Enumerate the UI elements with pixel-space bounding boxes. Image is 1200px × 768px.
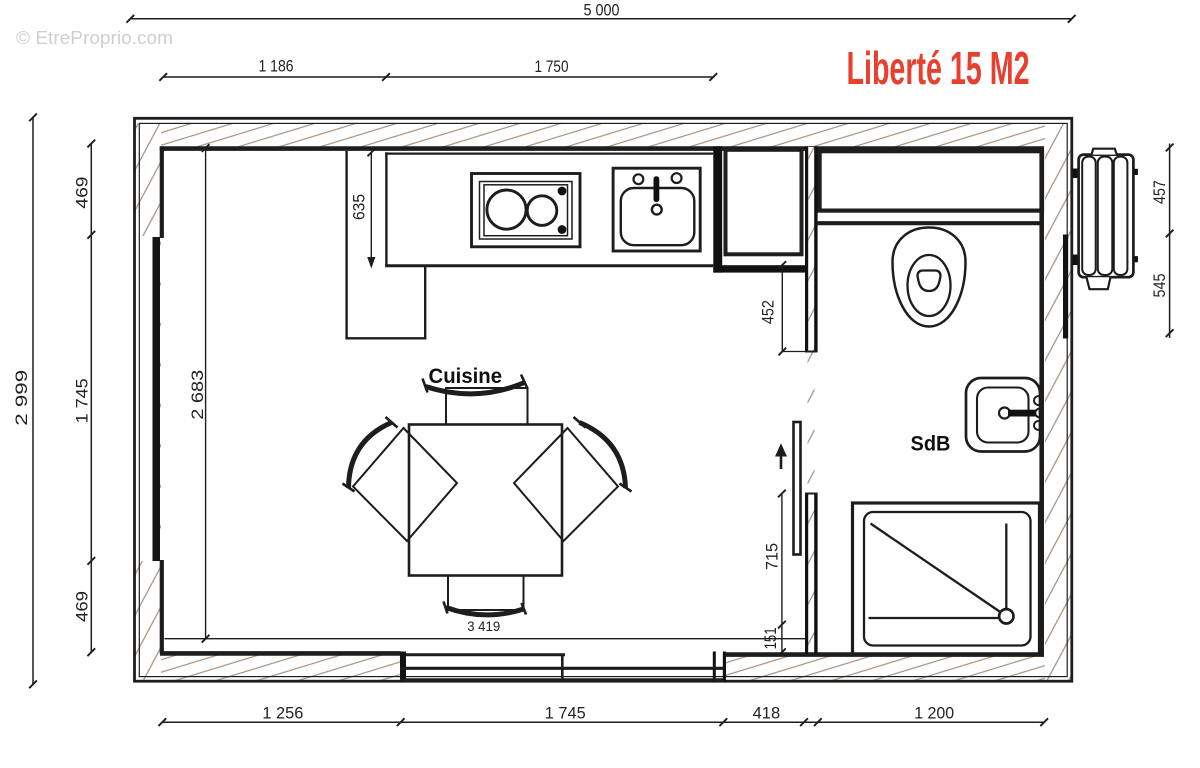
svg-text:715: 715 — [764, 543, 782, 570]
svg-text:469: 469 — [74, 177, 92, 209]
svg-text:1 750: 1 750 — [535, 58, 569, 76]
svg-text:SdB: SdB — [911, 433, 951, 456]
svg-text:1 745: 1 745 — [74, 378, 92, 423]
svg-text:3 419: 3 419 — [467, 618, 500, 634]
svg-text:545: 545 — [1151, 274, 1169, 298]
svg-text:457: 457 — [1151, 180, 1169, 204]
svg-text:1 745: 1 745 — [545, 705, 586, 723]
svg-text:5 000: 5 000 — [584, 1, 620, 19]
svg-text:Cuisine: Cuisine — [429, 365, 503, 388]
svg-text:452: 452 — [760, 300, 778, 324]
svg-text:151: 151 — [762, 627, 780, 649]
svg-text:1 200: 1 200 — [914, 705, 954, 723]
svg-text:469: 469 — [74, 591, 92, 622]
svg-text:Liberté 15 M2: Liberté 15 M2 — [847, 42, 1030, 94]
svg-text:1 186: 1 186 — [259, 58, 294, 76]
svg-text:418: 418 — [753, 705, 781, 723]
svg-text:635: 635 — [351, 194, 369, 220]
svg-text:2 999: 2 999 — [13, 370, 31, 426]
svg-text:© EtreProprio.com: © EtreProprio.com — [16, 27, 173, 48]
svg-text:2 683: 2 683 — [189, 370, 207, 420]
svg-text:1 256: 1 256 — [262, 705, 303, 723]
